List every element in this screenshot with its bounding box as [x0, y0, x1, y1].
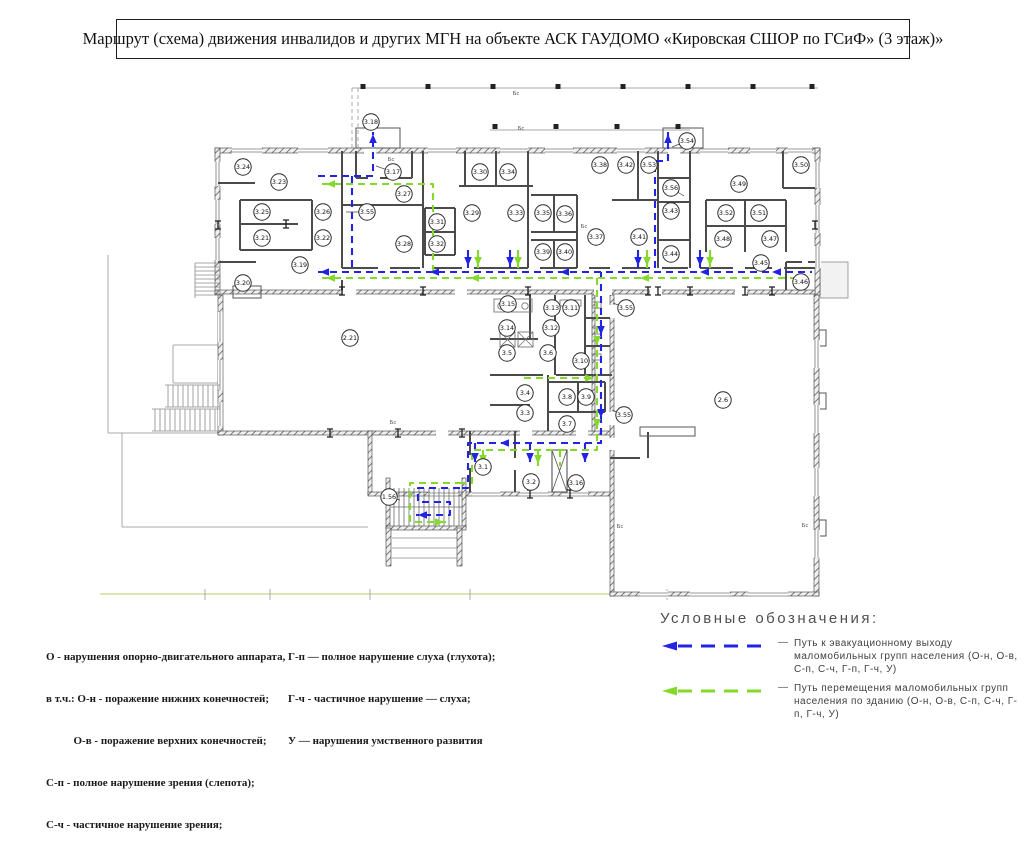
room-label: 3.28 — [396, 236, 412, 252]
room-label: 3.35 — [535, 205, 551, 221]
room-label: 3.39 — [535, 244, 551, 260]
svg-text:3.22: 3.22 — [316, 234, 330, 242]
svg-text:3.31: 3.31 — [430, 218, 444, 226]
room-label: 3.52 — [718, 205, 734, 221]
svg-text:3.16: 3.16 — [569, 479, 583, 487]
room-label: 3.9 — [578, 389, 594, 405]
abbr-line: С-п - полное нарушение зрения (слепота); — [46, 776, 285, 790]
svg-text:3.35: 3.35 — [536, 209, 550, 217]
door-tag: Бс — [617, 524, 624, 530]
svg-text:3.10: 3.10 — [574, 357, 588, 365]
svg-text:3.34: 3.34 — [501, 168, 515, 176]
svg-text:3.5: 3.5 — [502, 349, 512, 357]
svg-text:3.42: 3.42 — [619, 161, 633, 169]
room-label: 3.7 — [559, 416, 575, 432]
room-label: 3.1 — [475, 459, 491, 475]
room-label: 3.16 — [568, 475, 584, 491]
room-label: 3.56 — [663, 180, 684, 196]
svg-text:3.7: 3.7 — [562, 420, 572, 428]
room-label: 3.45 — [753, 255, 769, 271]
legend-label-evacuation: Путь к эвакуационному выходу маломобильн… — [794, 637, 1020, 676]
room-label: 3.55 — [346, 204, 375, 220]
route-arrowhead-icon — [581, 453, 589, 462]
svg-text:3.14: 3.14 — [500, 324, 514, 332]
svg-text:3.55: 3.55 — [360, 208, 374, 216]
svg-text:3.28: 3.28 — [397, 240, 411, 248]
svg-text:3.30: 3.30 — [473, 168, 487, 176]
room-label: 3.55 — [612, 407, 632, 423]
route-arrowhead-icon — [435, 518, 444, 526]
route-arrowhead-icon — [664, 134, 672, 143]
route-arrowhead-icon — [470, 274, 479, 282]
abbr-line: в т.ч.: О-н - поражение нижних конечност… — [46, 692, 285, 706]
route-arrowhead-icon — [369, 134, 377, 143]
room-label: 3.49 — [731, 176, 747, 192]
room-label: 1.56 — [381, 489, 400, 505]
abbr-line: У — нарушения умственного развития — [288, 734, 495, 748]
room-label: 3.3 — [517, 405, 533, 421]
legend-dash: — — [778, 682, 788, 693]
svg-text:3.9: 3.9 — [581, 393, 591, 401]
route-arrowhead-icon — [500, 439, 509, 447]
interior-partitions — [218, 151, 815, 492]
svg-text:3.12: 3.12 — [544, 324, 558, 332]
svg-text:2.21: 2.21 — [343, 334, 357, 342]
door-tag: Бс — [518, 126, 525, 132]
svg-text:3.33: 3.33 — [509, 209, 523, 217]
abbr-line: О-в - поражение верхних конечностей; — [46, 734, 285, 748]
route-arrowhead-icon — [696, 257, 704, 266]
svg-text:3.50: 3.50 — [794, 161, 808, 169]
room-label: 3.51 — [751, 205, 767, 221]
svg-text:3.56: 3.56 — [664, 184, 678, 192]
svg-text:3.26: 3.26 — [316, 208, 330, 216]
abbr-line: Г-п — полное нарушение слуха (глухота); — [288, 650, 495, 664]
room-label: 3.46 — [793, 274, 809, 290]
door-tag: Бс — [802, 523, 809, 529]
svg-text:3.37: 3.37 — [589, 233, 603, 241]
svg-text:3.18: 3.18 — [364, 118, 378, 126]
route-arrowhead-icon — [640, 274, 649, 282]
svg-text:3.44: 3.44 — [664, 250, 678, 258]
room-label: 3.5 — [499, 345, 515, 361]
svg-text:1.56: 1.56 — [382, 493, 396, 501]
evacuation-route-arrow-icon — [660, 640, 770, 652]
route-arrowhead-icon — [506, 257, 514, 266]
route-arrowhead-icon — [526, 453, 534, 462]
room-label: 3.14 — [499, 320, 515, 336]
svg-text:3.3: 3.3 — [520, 409, 530, 417]
svg-text:3.29: 3.29 — [465, 209, 479, 217]
room-label: 3.29 — [464, 205, 480, 221]
site-outline — [100, 88, 848, 600]
room-label: 2.6 — [715, 392, 731, 408]
room-label: 3.2 — [523, 474, 539, 490]
room-label: 3.41 — [631, 229, 647, 245]
svg-text:3.24: 3.24 — [236, 163, 250, 171]
svg-text:3.38: 3.38 — [593, 161, 607, 169]
abbr-line: С-ч - частичное нарушение зрения; — [46, 818, 285, 832]
svg-text:3.6: 3.6 — [543, 349, 553, 357]
room-label: 3.37 — [588, 229, 604, 245]
room-label: 3.12 — [543, 320, 559, 336]
svg-text:3.8: 3.8 — [562, 393, 572, 401]
route-arrowhead-icon — [700, 268, 709, 276]
room-label: 3.17 — [376, 164, 401, 180]
canopy-columns — [361, 84, 815, 129]
svg-text:3.32: 3.32 — [430, 240, 444, 248]
door-tag: Бс — [390, 420, 397, 426]
room-label: 3.32 — [429, 236, 445, 252]
svg-text:3.25: 3.25 — [255, 208, 269, 216]
room-label: 3.22 — [315, 230, 331, 246]
room-label: 3.27 — [396, 186, 412, 202]
svg-text:3.17: 3.17 — [386, 168, 400, 176]
svg-text:3.11: 3.11 — [564, 304, 578, 312]
room-label: 3.54 — [672, 133, 695, 149]
route-arrowhead-icon — [430, 268, 439, 276]
room-label: 3.38 — [592, 157, 608, 173]
svg-text:3.41: 3.41 — [632, 233, 646, 241]
route-arrowhead-icon — [326, 274, 335, 282]
room-label: 3.18 — [363, 114, 379, 130]
svg-text:3.51: 3.51 — [752, 209, 766, 217]
room-label: 3.44 — [663, 246, 679, 262]
room-label: 3.21 — [254, 230, 270, 246]
route-arrowhead-icon — [772, 268, 781, 276]
route-arrowhead-icon — [706, 257, 714, 266]
svg-text:3.21: 3.21 — [255, 234, 269, 242]
svg-text:3.13: 3.13 — [545, 304, 559, 312]
legend-item-evacuation: — Путь к эвакуационному выходу маломобил… — [660, 637, 1020, 676]
route-movement — [322, 184, 433, 278]
room-label: 3.23 — [271, 174, 287, 190]
room-label: 3.47 — [762, 231, 778, 247]
room-label: 3.13 — [544, 300, 560, 316]
route-arrowhead-icon — [634, 257, 642, 266]
route-arrowhead-icon — [643, 257, 651, 266]
room-label: 3.42 — [618, 157, 634, 173]
room-label: 3.4 — [517, 385, 533, 401]
door-tag: Бс — [513, 91, 520, 97]
room-label: 3.26 — [315, 204, 331, 220]
svg-text:3.20: 3.20 — [236, 279, 250, 287]
room-label: 3.36 — [557, 206, 573, 222]
abbr-line: О - нарушения опорно-двигательного аппар… — [46, 650, 285, 664]
svg-text:3.49: 3.49 — [732, 180, 746, 188]
svg-text:3.23: 3.23 — [272, 178, 286, 186]
svg-text:3.15: 3.15 — [501, 300, 515, 308]
door-tag: Бс — [388, 157, 395, 163]
room-label: 3.53 — [641, 157, 657, 173]
svg-text:3.46: 3.46 — [794, 278, 808, 286]
route-arrowhead-icon — [560, 268, 569, 276]
abbr-line: Г-ч - частичное нарушение — слуха; — [288, 692, 495, 706]
room-label: 3.31 — [429, 214, 445, 230]
route-arrowhead-icon — [320, 268, 329, 276]
abbreviations-column-1: О - нарушения опорно-двигательного аппар… — [46, 622, 285, 846]
room-label: 3.6 — [540, 345, 556, 361]
svg-text:3.40: 3.40 — [558, 248, 572, 256]
room-label: 3.25 — [254, 204, 270, 220]
route-arrowhead-icon — [597, 409, 605, 418]
room-label: 3.50 — [793, 157, 809, 173]
stairs — [152, 263, 462, 526]
room-label: 3.43 — [663, 203, 679, 219]
door-tag: Бс — [581, 224, 588, 230]
svg-text:3.53: 3.53 — [642, 161, 656, 169]
legend-heading: Условные обозначения: — [660, 610, 1020, 627]
room-label: 3.30 — [472, 164, 488, 180]
room-label: 3.55 — [613, 300, 634, 316]
movement-route-arrow-icon — [660, 685, 770, 697]
svg-text:3.4: 3.4 — [520, 389, 530, 397]
room-label: 3.11 — [563, 300, 579, 316]
svg-text:3.36: 3.36 — [558, 210, 572, 218]
room-label: 3.24 — [235, 159, 251, 175]
room-label: 3.10 — [573, 353, 589, 369]
route-arrowhead-icon — [474, 257, 482, 266]
room-label: 3.19 — [292, 257, 308, 273]
room-label: 3.48 — [715, 231, 731, 247]
svg-text:3.45: 3.45 — [754, 259, 768, 267]
svg-text:3.43: 3.43 — [664, 207, 678, 215]
room-labels: 3.243.233.253.263.213.223.553.193.203.18… — [235, 114, 809, 505]
legend-item-movement: — Путь перемещения маломобильных групп н… — [660, 682, 1020, 721]
room-label: 3.33 — [508, 205, 524, 221]
svg-text:3.54: 3.54 — [680, 137, 694, 145]
legend-label-movement: Путь перемещения маломобильных групп нас… — [794, 682, 1020, 721]
route-arrowhead-icon — [326, 180, 335, 188]
svg-text:3.27: 3.27 — [397, 190, 411, 198]
route-arrowhead-icon — [514, 257, 522, 266]
svg-text:3.52: 3.52 — [719, 209, 733, 217]
svg-text:3.2: 3.2 — [526, 478, 536, 486]
room-label: 3.15 — [500, 296, 516, 312]
route-arrowhead-icon — [534, 455, 542, 464]
room-label: 3.40 — [557, 244, 573, 260]
svg-text:3.55: 3.55 — [619, 304, 633, 312]
svg-text:3.47: 3.47 — [763, 235, 777, 243]
route-arrowhead-icon — [464, 257, 472, 266]
room-label: 3.8 — [559, 389, 575, 405]
legend-dash: — — [778, 637, 788, 648]
room-label: 2.21 — [342, 330, 358, 346]
room-label: 3.20 — [235, 275, 251, 291]
svg-text:3.1: 3.1 — [478, 463, 488, 471]
svg-text:3.55: 3.55 — [617, 411, 631, 419]
abbreviations-column-2: Г-п — полное нарушение слуха (глухота); … — [288, 622, 495, 762]
svg-text:3.48: 3.48 — [716, 235, 730, 243]
room-label: 3.34 — [500, 164, 516, 180]
svg-text:3.19: 3.19 — [293, 261, 307, 269]
svg-text:3.39: 3.39 — [536, 248, 550, 256]
svg-text:2.6: 2.6 — [718, 396, 728, 404]
legend: Условные обозначения: — Путь к эвакуацио… — [660, 610, 1020, 727]
